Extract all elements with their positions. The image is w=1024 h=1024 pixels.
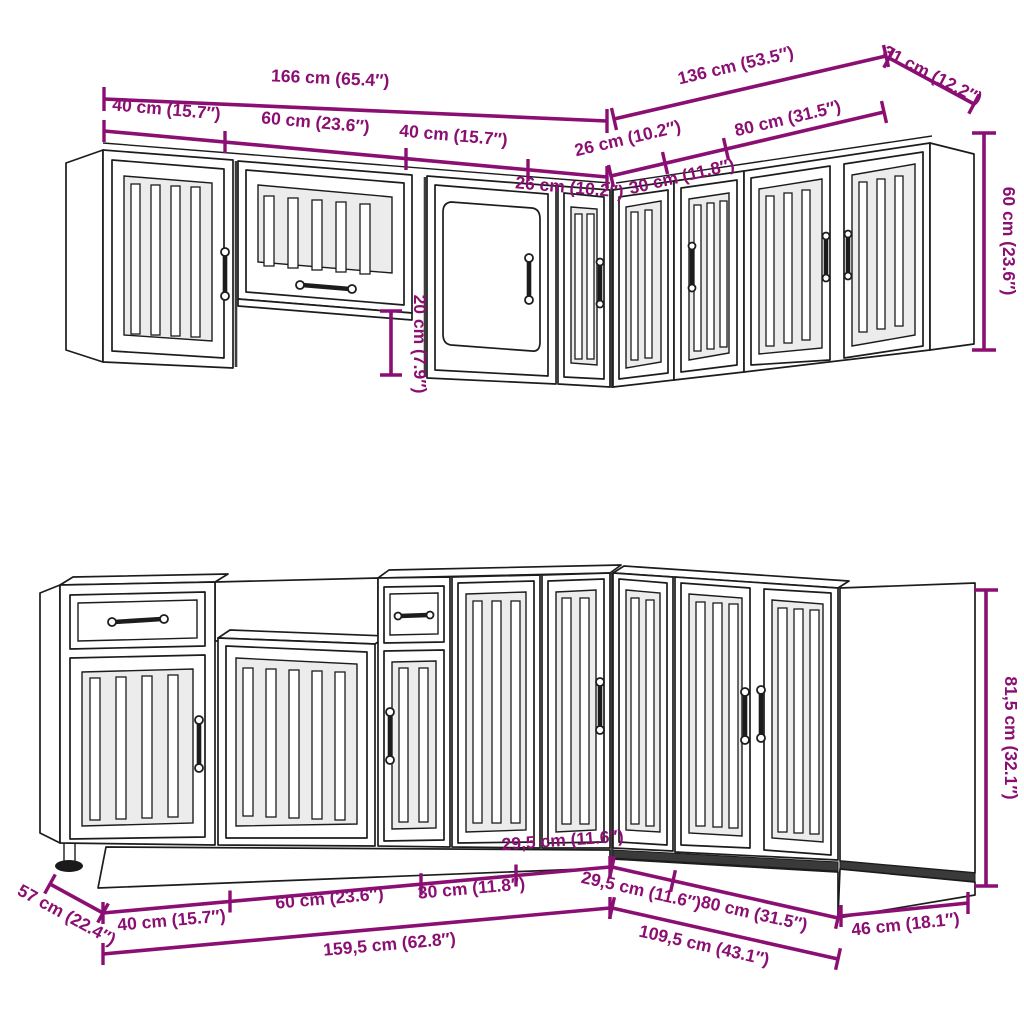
door-slat xyxy=(191,187,200,337)
door-slat xyxy=(335,672,345,820)
dim-label-hood-gap: 20 cm (7.9″) xyxy=(410,295,430,394)
handle-knob xyxy=(597,259,604,266)
handle-knob xyxy=(596,726,604,734)
base-cabinet-corner-angled xyxy=(542,573,610,848)
dim-label-total-left: 166 cm (65.4″) xyxy=(271,65,390,90)
door-slat xyxy=(289,670,299,818)
dim-label-wall-height: 60 cm (23.6″) xyxy=(999,187,1019,296)
glass-door-pane xyxy=(443,202,540,351)
door-slat xyxy=(645,210,652,358)
door-slat xyxy=(794,609,803,833)
base-cabinet-corner-right xyxy=(613,573,673,851)
dim-label-seg-40b: 40 cm (15.7″) xyxy=(399,120,509,149)
door-slat xyxy=(492,601,501,823)
wall-cabinet-30 xyxy=(674,171,744,380)
handle-knob xyxy=(757,734,765,742)
door-slat xyxy=(646,600,654,826)
wall-cabinet-40-left xyxy=(103,150,233,368)
cabinet-leg-foot xyxy=(55,860,83,872)
handle-knob xyxy=(845,231,852,238)
handle-knob xyxy=(597,301,604,308)
door-slat xyxy=(810,610,819,834)
plinth-left-run xyxy=(98,847,610,888)
dim-top-depth-right: 31 cm (12.2″) xyxy=(880,41,986,114)
handle-knob xyxy=(395,613,402,620)
door-slat xyxy=(264,196,274,266)
dim-label-seg-60-base: 60 cm (23.6″) xyxy=(275,883,385,912)
door-slat xyxy=(720,201,727,347)
handle-knob xyxy=(741,688,749,696)
handle-knob xyxy=(525,296,533,304)
door-slat xyxy=(312,671,322,819)
handle-knob xyxy=(221,248,229,256)
door-slat xyxy=(151,185,160,335)
dim-label-base-height: 81,5 cm (32.1″) xyxy=(1001,676,1021,799)
door-slat xyxy=(399,668,408,822)
door-slat xyxy=(336,202,346,272)
door-slat xyxy=(766,196,774,346)
base-cabinet-30 xyxy=(378,577,450,847)
wall-cabinet-side-panel-left xyxy=(66,150,103,362)
door-slat xyxy=(631,598,639,824)
handle-knob xyxy=(348,285,356,293)
door-slat xyxy=(802,190,810,340)
drawer-handle xyxy=(114,619,162,622)
handle-knob xyxy=(741,736,749,744)
door-slat xyxy=(360,204,370,274)
dim-bottom-height: 81,5 cm (32.1″) xyxy=(974,590,1021,886)
door-slat xyxy=(90,678,100,820)
wall-cabinet-side-panel-right xyxy=(930,143,974,350)
dim-label-depth-right: 31 cm (12.2″) xyxy=(880,41,986,108)
handle-knob xyxy=(823,275,830,282)
door-slat xyxy=(778,608,787,832)
base-cabinet-60-sink xyxy=(218,638,375,846)
door-slat xyxy=(419,668,428,822)
base-cabinet-corner-front xyxy=(452,575,540,848)
handle-knob xyxy=(296,281,304,289)
door-slat xyxy=(784,193,792,343)
door-slat xyxy=(312,200,322,270)
handle-knob xyxy=(596,678,604,686)
dim-label-seg-30-base: 30 cm (11.8″) xyxy=(417,873,526,902)
diagram-canvas: 166 cm (65.4″) 136 cm (53.5″) 31 cm (12.… xyxy=(0,0,1024,1024)
wall-cabinet-26-corner-right xyxy=(613,181,674,387)
door-slat xyxy=(895,176,903,326)
dim-top-height: 60 cm (23.6″) xyxy=(972,133,1019,350)
door-slat xyxy=(575,214,582,359)
handle-knob xyxy=(845,273,852,280)
door-slat xyxy=(713,603,722,827)
door-slat xyxy=(696,602,705,826)
door-slat xyxy=(473,601,482,823)
dim-label-seg-26-right: 26 cm (10.2″) xyxy=(572,116,682,160)
wall-cabinet-40-glass xyxy=(427,176,556,384)
handle-knob xyxy=(221,292,229,300)
wall-cabinet-80-double xyxy=(744,143,930,372)
handle-knob xyxy=(195,716,203,724)
handle-knob xyxy=(386,756,394,764)
door-slat xyxy=(266,669,276,817)
base-cabinets-drawing xyxy=(40,565,975,918)
kitchen-cabinet-dimension-diagram: 166 cm (65.4″) 136 cm (53.5″) 31 cm (12.… xyxy=(0,0,1024,1024)
handle-knob xyxy=(386,708,394,716)
door-slat xyxy=(131,184,140,334)
door-slat xyxy=(142,676,152,818)
handle-knob xyxy=(823,233,830,240)
handle-knob xyxy=(689,243,696,250)
base-cabinet-side-panel-left xyxy=(40,585,60,843)
door-slat xyxy=(859,182,867,332)
handle-knob xyxy=(757,686,765,694)
base-cabinet-side-panel-right xyxy=(840,583,975,873)
base-cabinet-40 xyxy=(60,582,215,845)
wall-cabinet-60-hood xyxy=(238,161,412,320)
door-slat xyxy=(243,668,253,816)
handle-knob xyxy=(195,764,203,772)
dim-label-seg-60: 60 cm (23.6″) xyxy=(261,107,371,136)
door-slat xyxy=(288,198,298,268)
handle-knob xyxy=(689,285,696,292)
base-cabinet-80-double xyxy=(675,577,838,860)
door-slat xyxy=(171,186,180,336)
door-slat xyxy=(707,203,714,349)
handle-knob xyxy=(160,615,168,623)
drawer-handle xyxy=(400,615,428,616)
door-slat xyxy=(877,179,885,329)
handle-knob xyxy=(525,254,533,262)
handle-knob xyxy=(427,612,434,619)
door-slat xyxy=(580,598,589,824)
dim-label-seg-40a: 40 cm (15.7″) xyxy=(112,94,222,123)
door-slat xyxy=(729,604,738,828)
door-slat xyxy=(694,205,701,351)
handle-knob xyxy=(108,618,116,626)
door-slat xyxy=(587,214,594,359)
door-slat xyxy=(631,212,638,360)
door-slat xyxy=(562,598,571,824)
door-slat xyxy=(168,675,178,817)
wall-cabinet-26-corner-left xyxy=(558,186,610,387)
door-slat xyxy=(511,601,520,823)
door-slat xyxy=(116,677,126,819)
